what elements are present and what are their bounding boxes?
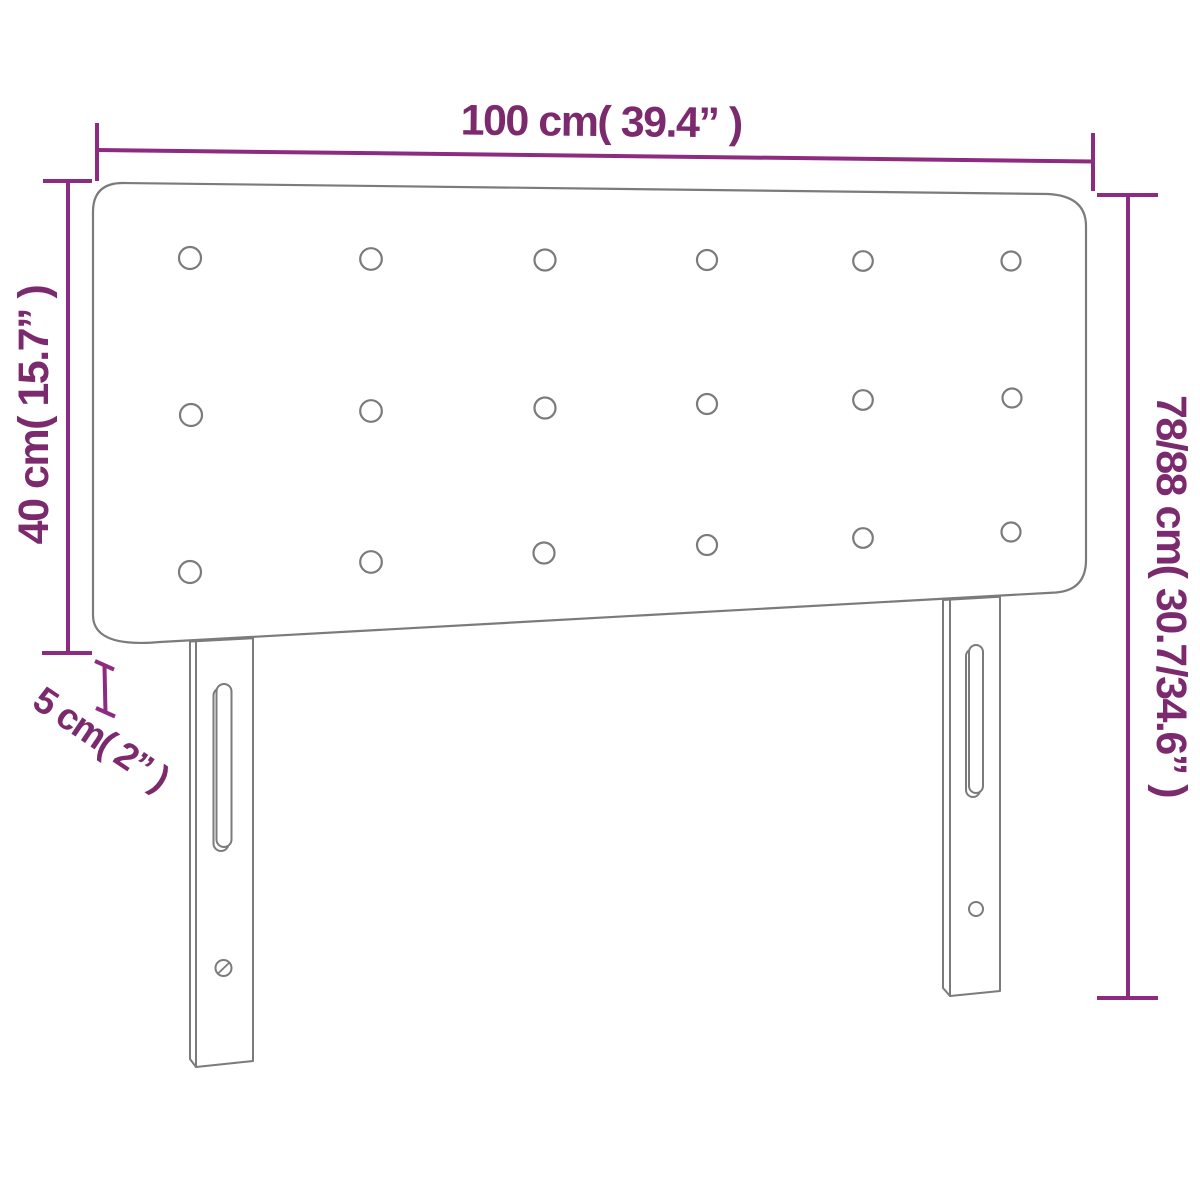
tufting-button [1002,523,1021,542]
tufting-button [535,250,556,271]
left-leg-slot [217,684,232,847]
tufting-button [180,404,202,426]
right-leg [943,597,1000,996]
dimension-thickness-label: 5 cm( 2” ) [26,679,176,799]
right-leg-screw-hole [969,902,983,916]
tufting-button [360,400,382,422]
tufting-button [1002,252,1021,271]
tufting-button [853,390,873,410]
tufting-button [179,561,201,583]
dimension-thickness: 5 cm( 2” ) [26,661,176,799]
left-leg [190,638,253,1067]
dimension-width-label: 100 cm( 39.4” ) [460,97,742,148]
diagram-canvas: 100 cm( 39.4” )40 cm( 15.7” )78/88 cm( 3… [0,0,1200,1200]
dimension-upholstered-height: 40 cm( 15.7” ) [10,181,92,653]
right-leg-side-face [943,600,950,996]
dimension-thickness-line [105,666,106,713]
dimension-total-height-label: 78/88 cm( 30.7/34.6” ) [1147,395,1195,797]
dimension-width-line [97,150,1093,162]
right-leg-slot [969,645,983,793]
tufting-button [534,543,555,564]
tufting-button [360,248,382,270]
tufting-button [853,528,873,548]
tufting-button [1003,389,1022,408]
dimension-total-height: 78/88 cm( 30.7/34.6” ) [1097,195,1195,998]
dimension-width: 100 cm( 39.4” ) [97,97,1093,191]
tufting-button [179,247,201,269]
tufting-button [853,251,873,271]
dimension-upholstered-height-label: 40 cm( 15.7” ) [10,286,58,545]
tufting-button [697,250,717,270]
tufting-button [697,394,717,414]
tufting-button [697,535,717,555]
headboard-dimension-diagram: 100 cm( 39.4” )40 cm( 15.7” )78/88 cm( 3… [0,0,1200,1200]
tufting-button [360,551,382,573]
tufting-button [535,398,556,419]
headboard-panel [93,183,1086,643]
